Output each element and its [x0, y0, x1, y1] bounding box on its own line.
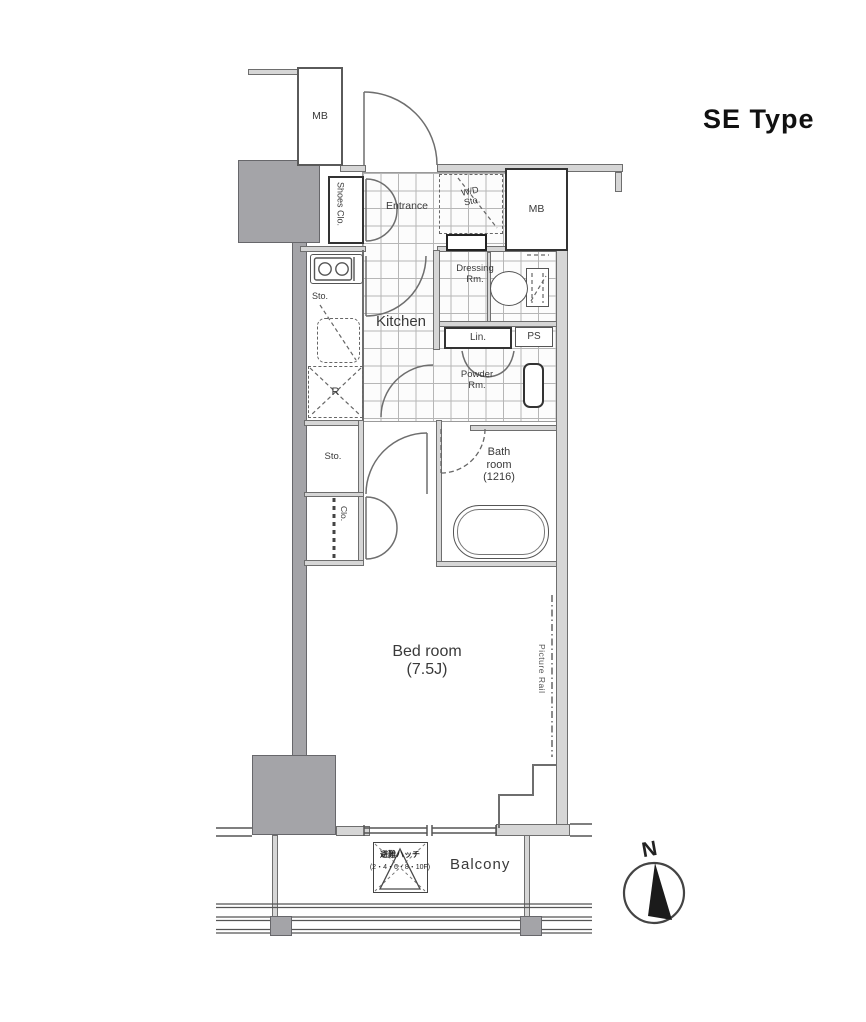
kitchen-storage-label: Sto. [312, 291, 328, 301]
entrance-label: Entrance [374, 200, 440, 212]
pillar-bottom-left [252, 755, 336, 835]
stove-icon [310, 254, 363, 284]
wall-closet-bottom [304, 560, 364, 566]
bath-line2: room [459, 459, 539, 472]
shoes-closet-box [328, 176, 364, 244]
powder-room-label: Powder Rm. [447, 370, 507, 392]
wall-bedroom-bottom-left [336, 826, 370, 836]
balcony-partition-left [272, 835, 278, 918]
bedroom-line2: (7.5J) [357, 661, 497, 679]
refrigerator-label: R [308, 366, 363, 418]
hatch-label-line1: 避難ハッチ [340, 850, 460, 859]
toilet-tank-icon [526, 268, 549, 307]
picture-rail-label: Picture Rail [536, 644, 546, 719]
wall-stub-top-left [248, 69, 300, 75]
washer-pan-icon [446, 234, 487, 251]
wall-storage-closet-divider [304, 492, 364, 497]
left-wall [292, 242, 307, 757]
storage-label: Sto. [304, 424, 362, 490]
step-wall [499, 765, 556, 828]
wall-bath-bottom [436, 561, 557, 567]
shoes-closet-label: Shoes Clo. [335, 182, 345, 242]
bedroom-label: Bed room (7.5J) [357, 643, 497, 680]
balcony-post-right [520, 916, 542, 936]
wall-right [556, 171, 568, 836]
balcony-post-left [270, 916, 292, 936]
wall-top-1 [340, 165, 366, 172]
pillar-top-left [238, 160, 320, 243]
bath-room-label: Bath room (1216) [459, 446, 539, 484]
washbasin-icon [523, 363, 544, 408]
kitchen-label: Kitchen [366, 313, 436, 330]
bath-line3: (1216) [459, 471, 539, 484]
dressing-line2: Rm. [445, 275, 505, 286]
compass-north-label: N [640, 837, 659, 863]
sink-icon [317, 318, 360, 363]
wall-stub-top-right [615, 172, 622, 192]
bathtub-inner [457, 509, 545, 555]
powder-line2: Rm. [447, 381, 507, 392]
meter-box-top-label: MB [297, 67, 343, 166]
bedroom-line1: Bed room [357, 643, 497, 661]
north-arrow-icon [624, 863, 684, 923]
pipe-space-label: PS [515, 327, 553, 347]
wall-bedroom-bottom-right [496, 824, 570, 836]
floor-plan: SE Type MB MB Shoes Clo. Entrance W/D St… [0, 0, 866, 1022]
balcony-label: Balcony [450, 856, 510, 873]
plan-title: SE Type [703, 104, 815, 135]
wall-bath-top [470, 425, 557, 431]
hatch-label-line2: (2・4・6・8・10F) [340, 864, 460, 872]
dressing-room-label: Dressing Rm. [445, 264, 505, 286]
wall-corridor-right [433, 250, 440, 350]
closet-label: Clo. [338, 506, 348, 558]
linen-label: Lin. [444, 327, 512, 349]
bath-line1: Bath [459, 446, 539, 459]
wall-bath-left [436, 420, 442, 567]
balcony-partition-right [524, 835, 530, 918]
meter-box-right-label: MB [505, 168, 568, 251]
wall-kitchen-top [300, 246, 366, 252]
